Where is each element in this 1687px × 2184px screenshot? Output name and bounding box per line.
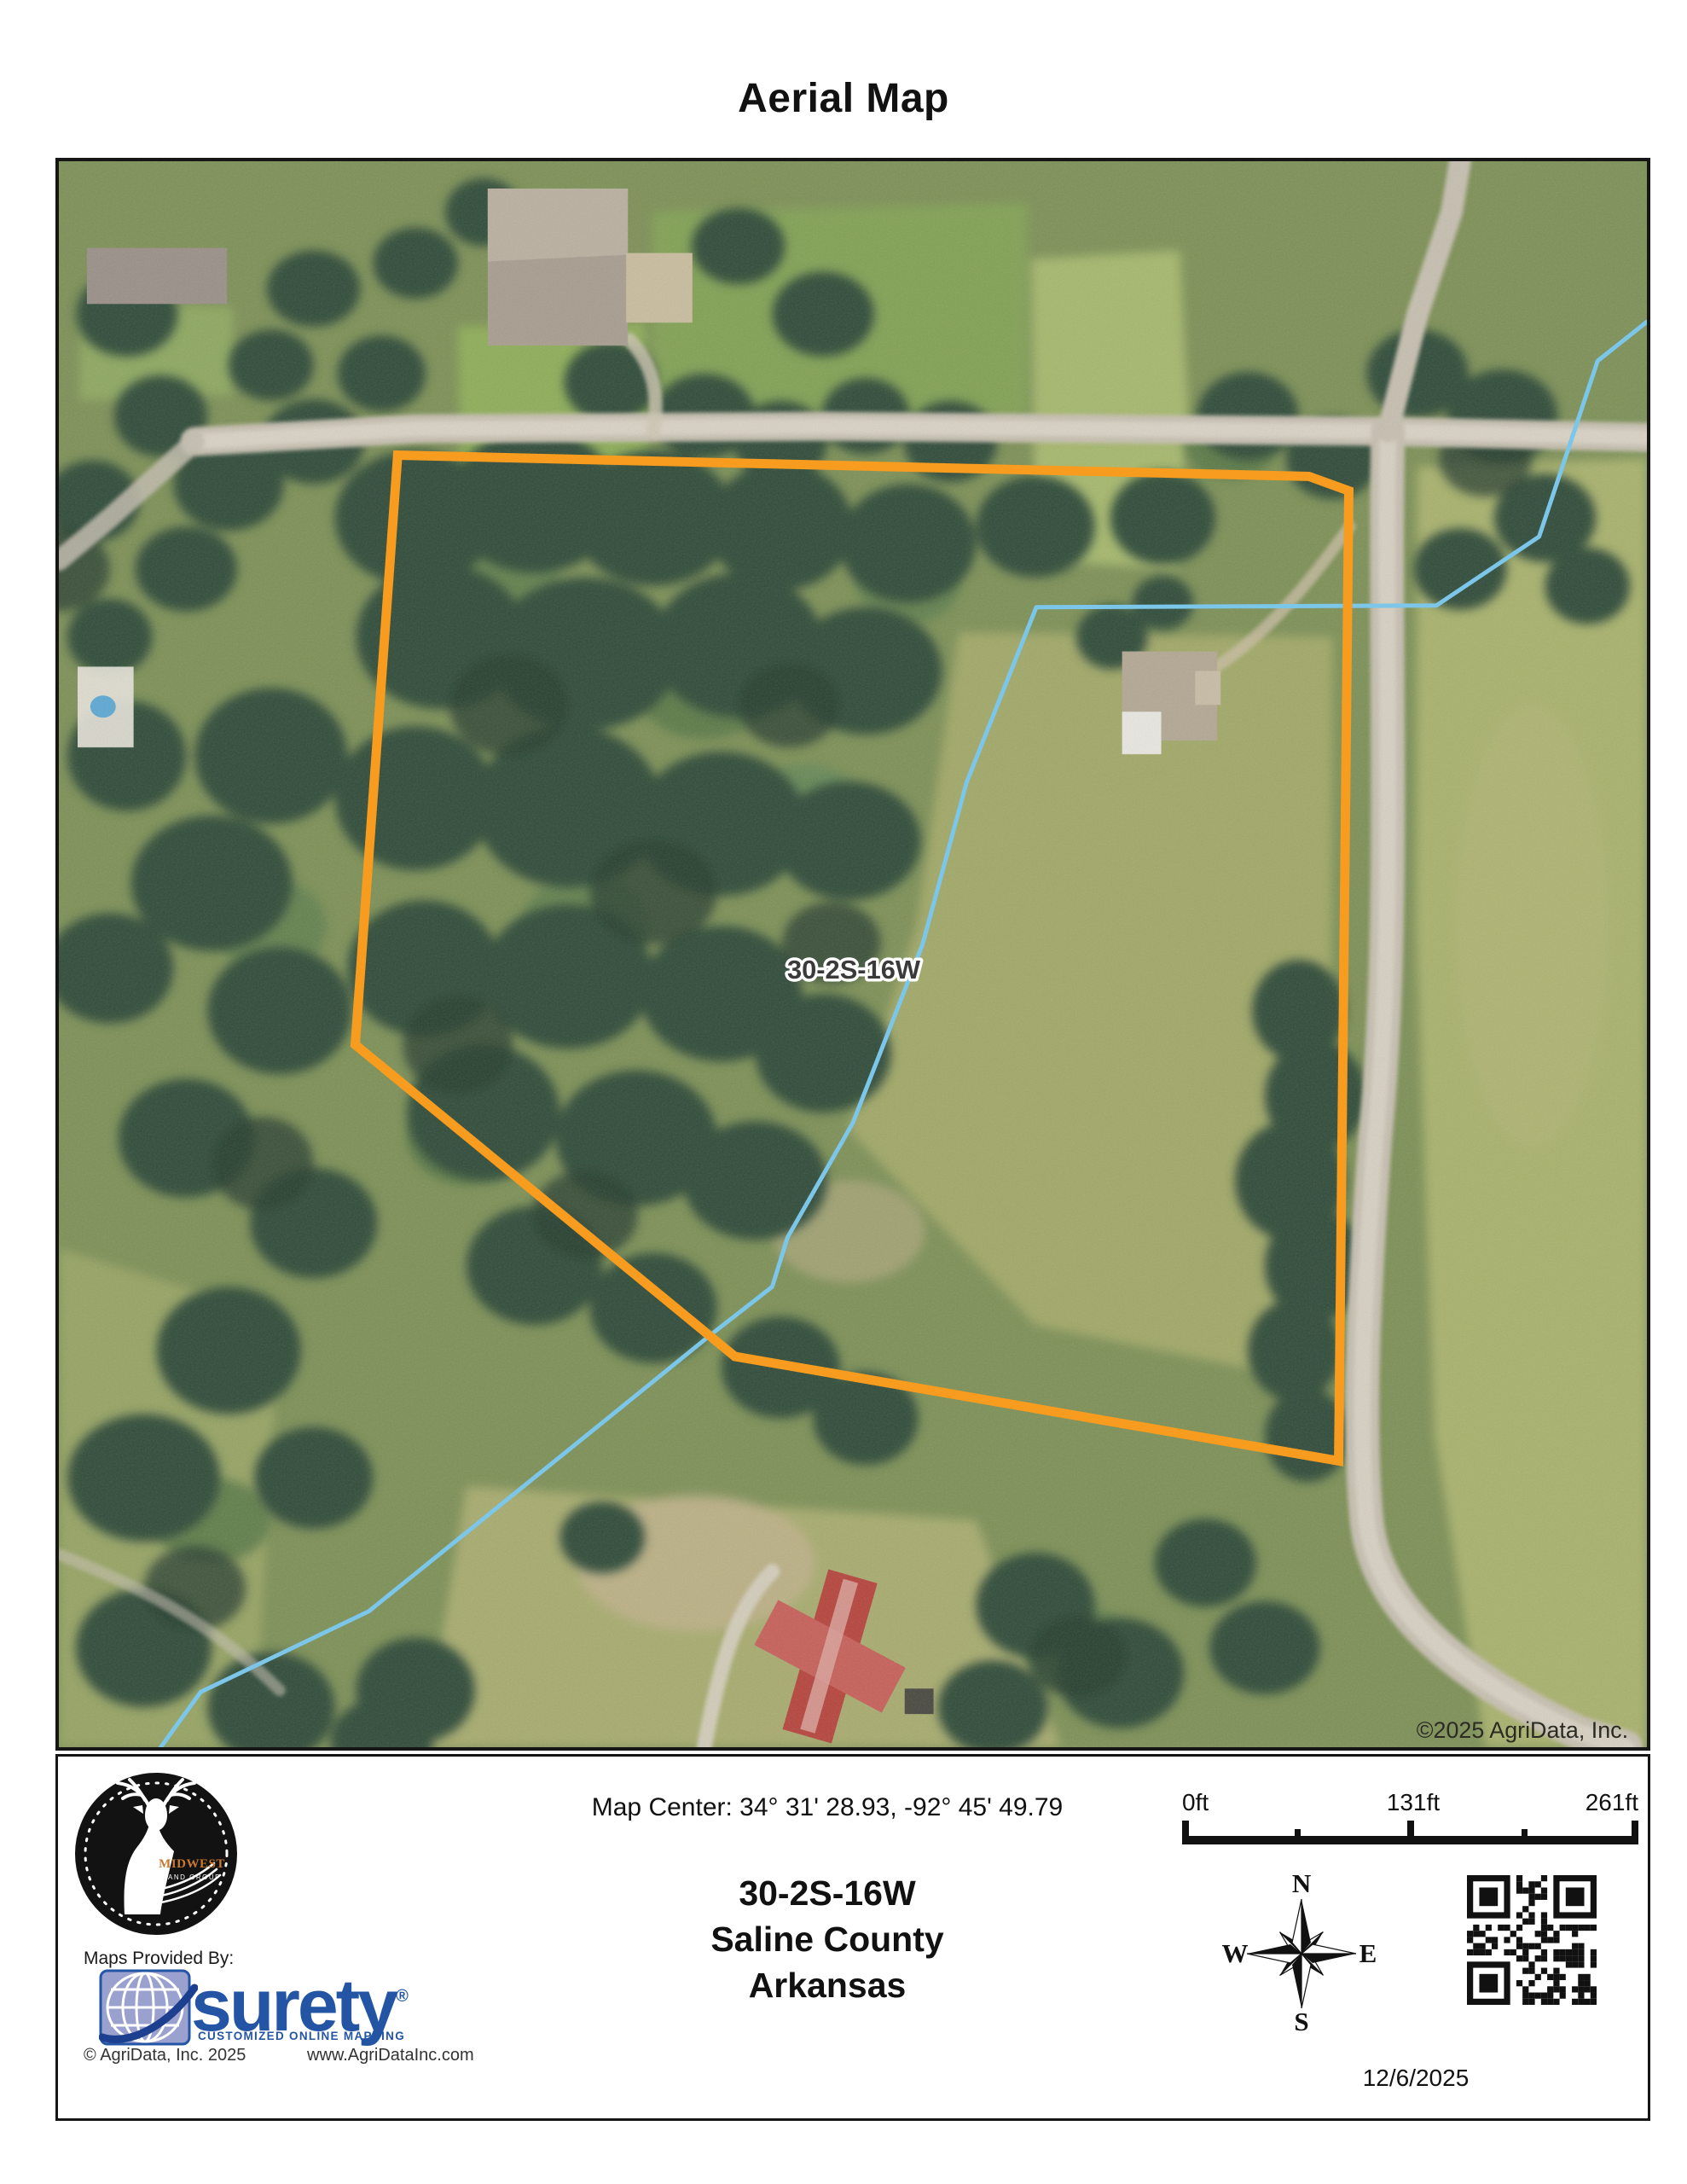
agridata-copyright: © AgriData, Inc. 2025 <box>84 2046 246 2065</box>
scale-end-label: 261ft <box>1586 1789 1638 1815</box>
surety-tagline: CUSTOMIZED ONLINE MAPPING <box>198 2030 405 2042</box>
imagery-copyright: ©2025 AgriData, Inc. <box>1417 1717 1628 1743</box>
compass-north-label: N <box>1292 1868 1311 1898</box>
midwest-land-group-logo: MIDWEST LAND GROUP <box>73 1771 239 1937</box>
scale-bar: 0ft 131ft 261ft <box>1175 1783 1649 1850</box>
registered-mark: ® <box>396 1987 409 2006</box>
logo-brand-text: MIDWEST <box>159 1857 225 1871</box>
map-date: 12/6/2025 <box>1296 2065 1535 2092</box>
county-label: Saline County <box>443 1916 1211 1962</box>
surety-globe-icon <box>99 1969 198 2047</box>
scale-mid-label: 131ft <box>1387 1789 1440 1815</box>
scale-start-label: 0ft <box>1182 1789 1209 1815</box>
compass-west-label: W <box>1222 1938 1249 1968</box>
aerial-map-report: Aerial Map <box>0 0 1687 2184</box>
parcel-map-label: 30-2S-16W <box>787 955 921 985</box>
location-block: 30-2S-16W Saline County Arkansas <box>443 1870 1211 2008</box>
logo-sub-text: LAND GROUP <box>163 1873 221 1881</box>
state-label: Arkansas <box>443 1962 1211 2008</box>
map-center-coordinates: Map Center: 34° 31' 28.93, -92° 45' 49.7… <box>443 1793 1211 1822</box>
compass-south-label: S <box>1294 2007 1308 2036</box>
compass-rose: N E S W <box>1220 1865 1383 2036</box>
surety-wordmark: surety® <box>191 1962 409 2040</box>
aerial-map: 30-2S-16W ©2025 AgriData, Inc. <box>55 158 1650 1751</box>
compass-cardinal-points <box>1247 1899 1356 2008</box>
qr-code <box>1467 1875 1597 2005</box>
scale-ruler <box>1182 1821 1638 1844</box>
agridata-url: www.AgriDataInc.com <box>307 2046 474 2065</box>
page-title: Aerial Map <box>0 75 1687 122</box>
plss-label: 30-2S-16W <box>443 1870 1211 1916</box>
compass-east-label: E <box>1359 1938 1377 1968</box>
aerial-imagery: 30-2S-16W ©2025 AgriData, Inc. <box>59 161 1647 1747</box>
